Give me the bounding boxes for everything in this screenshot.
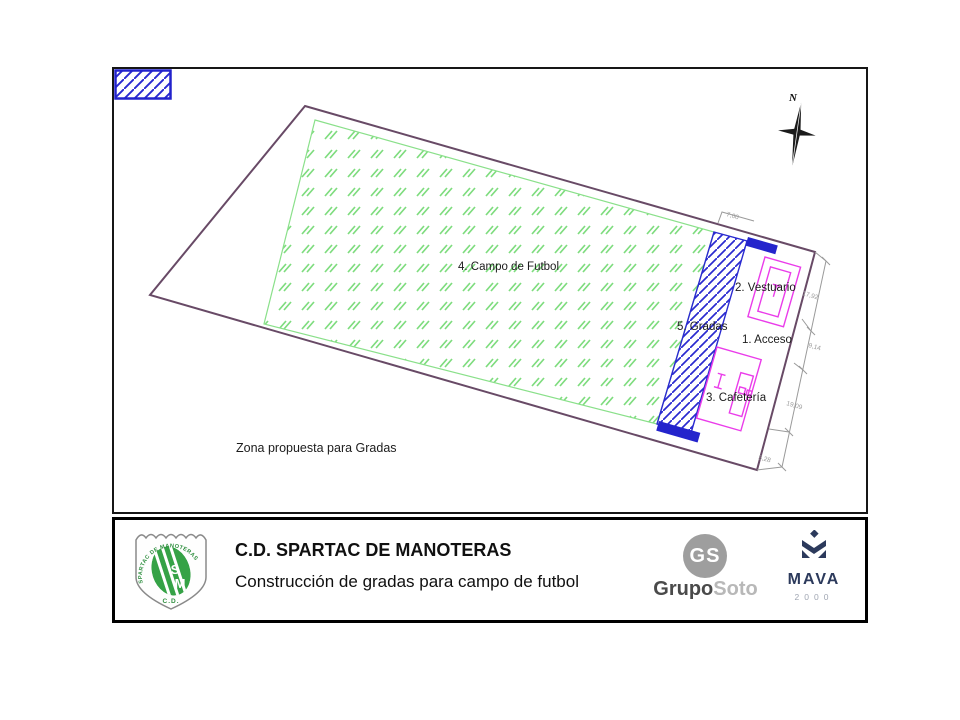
label-campo-de-futbol: 4. Campo de Futbol [458,261,559,273]
project-subtitle: Construcción de gradas para campo de fut… [235,572,579,592]
label-vestuario: 2. Vestuario [735,282,796,294]
mava-logo: MAVA 2000 [779,530,849,602]
page: 7,00 17,92 9,14 19,09 5,28 N 4. Campo de… [0,0,960,720]
label-gradas: 5. Gradas [677,321,728,333]
dim-acceso: 9,14 [807,342,821,352]
dim-vestuario: 17,92 [801,290,819,301]
grupo-soto-wordmark: GrupoSoto [633,578,778,601]
grupo-soto-name-light: Soto [713,578,757,600]
legend-label: Zona propuesta para Gradas [236,441,397,455]
mava-year: 2000 [779,592,849,602]
crest-letter-m: M [175,576,186,591]
north-arrow-icon [773,100,820,171]
label-acceso: 1. Acceso [742,334,792,346]
grupo-soto-emblem-letters: GS [690,545,721,568]
club-crest-icon: S M SPARTAC DE MANOTERAS C.D. [131,527,211,617]
dim-top: 7,00 [725,211,739,221]
grupo-soto-emblem-icon: GS [683,534,727,578]
mava-name: MAVA [779,571,849,589]
project-title: C.D. SPARTAC DE MANOTERAS [235,540,511,561]
legend-swatch [114,69,172,100]
crest-letter-s: S [171,562,180,577]
grupo-soto-name-dark: Grupo [653,578,713,600]
crest-cd-text: C.D. [163,598,180,605]
label-cafeteria: 3. Cafetería [706,392,766,404]
plan-sheet: 7,00 17,92 9,14 19,09 5,28 N 4. Campo de… [112,67,868,514]
north-label: N [788,92,798,104]
title-block: S M SPARTAC DE MANOTERAS C.D. C.D. SPART… [112,517,868,623]
mava-emblem-icon [779,530,849,564]
